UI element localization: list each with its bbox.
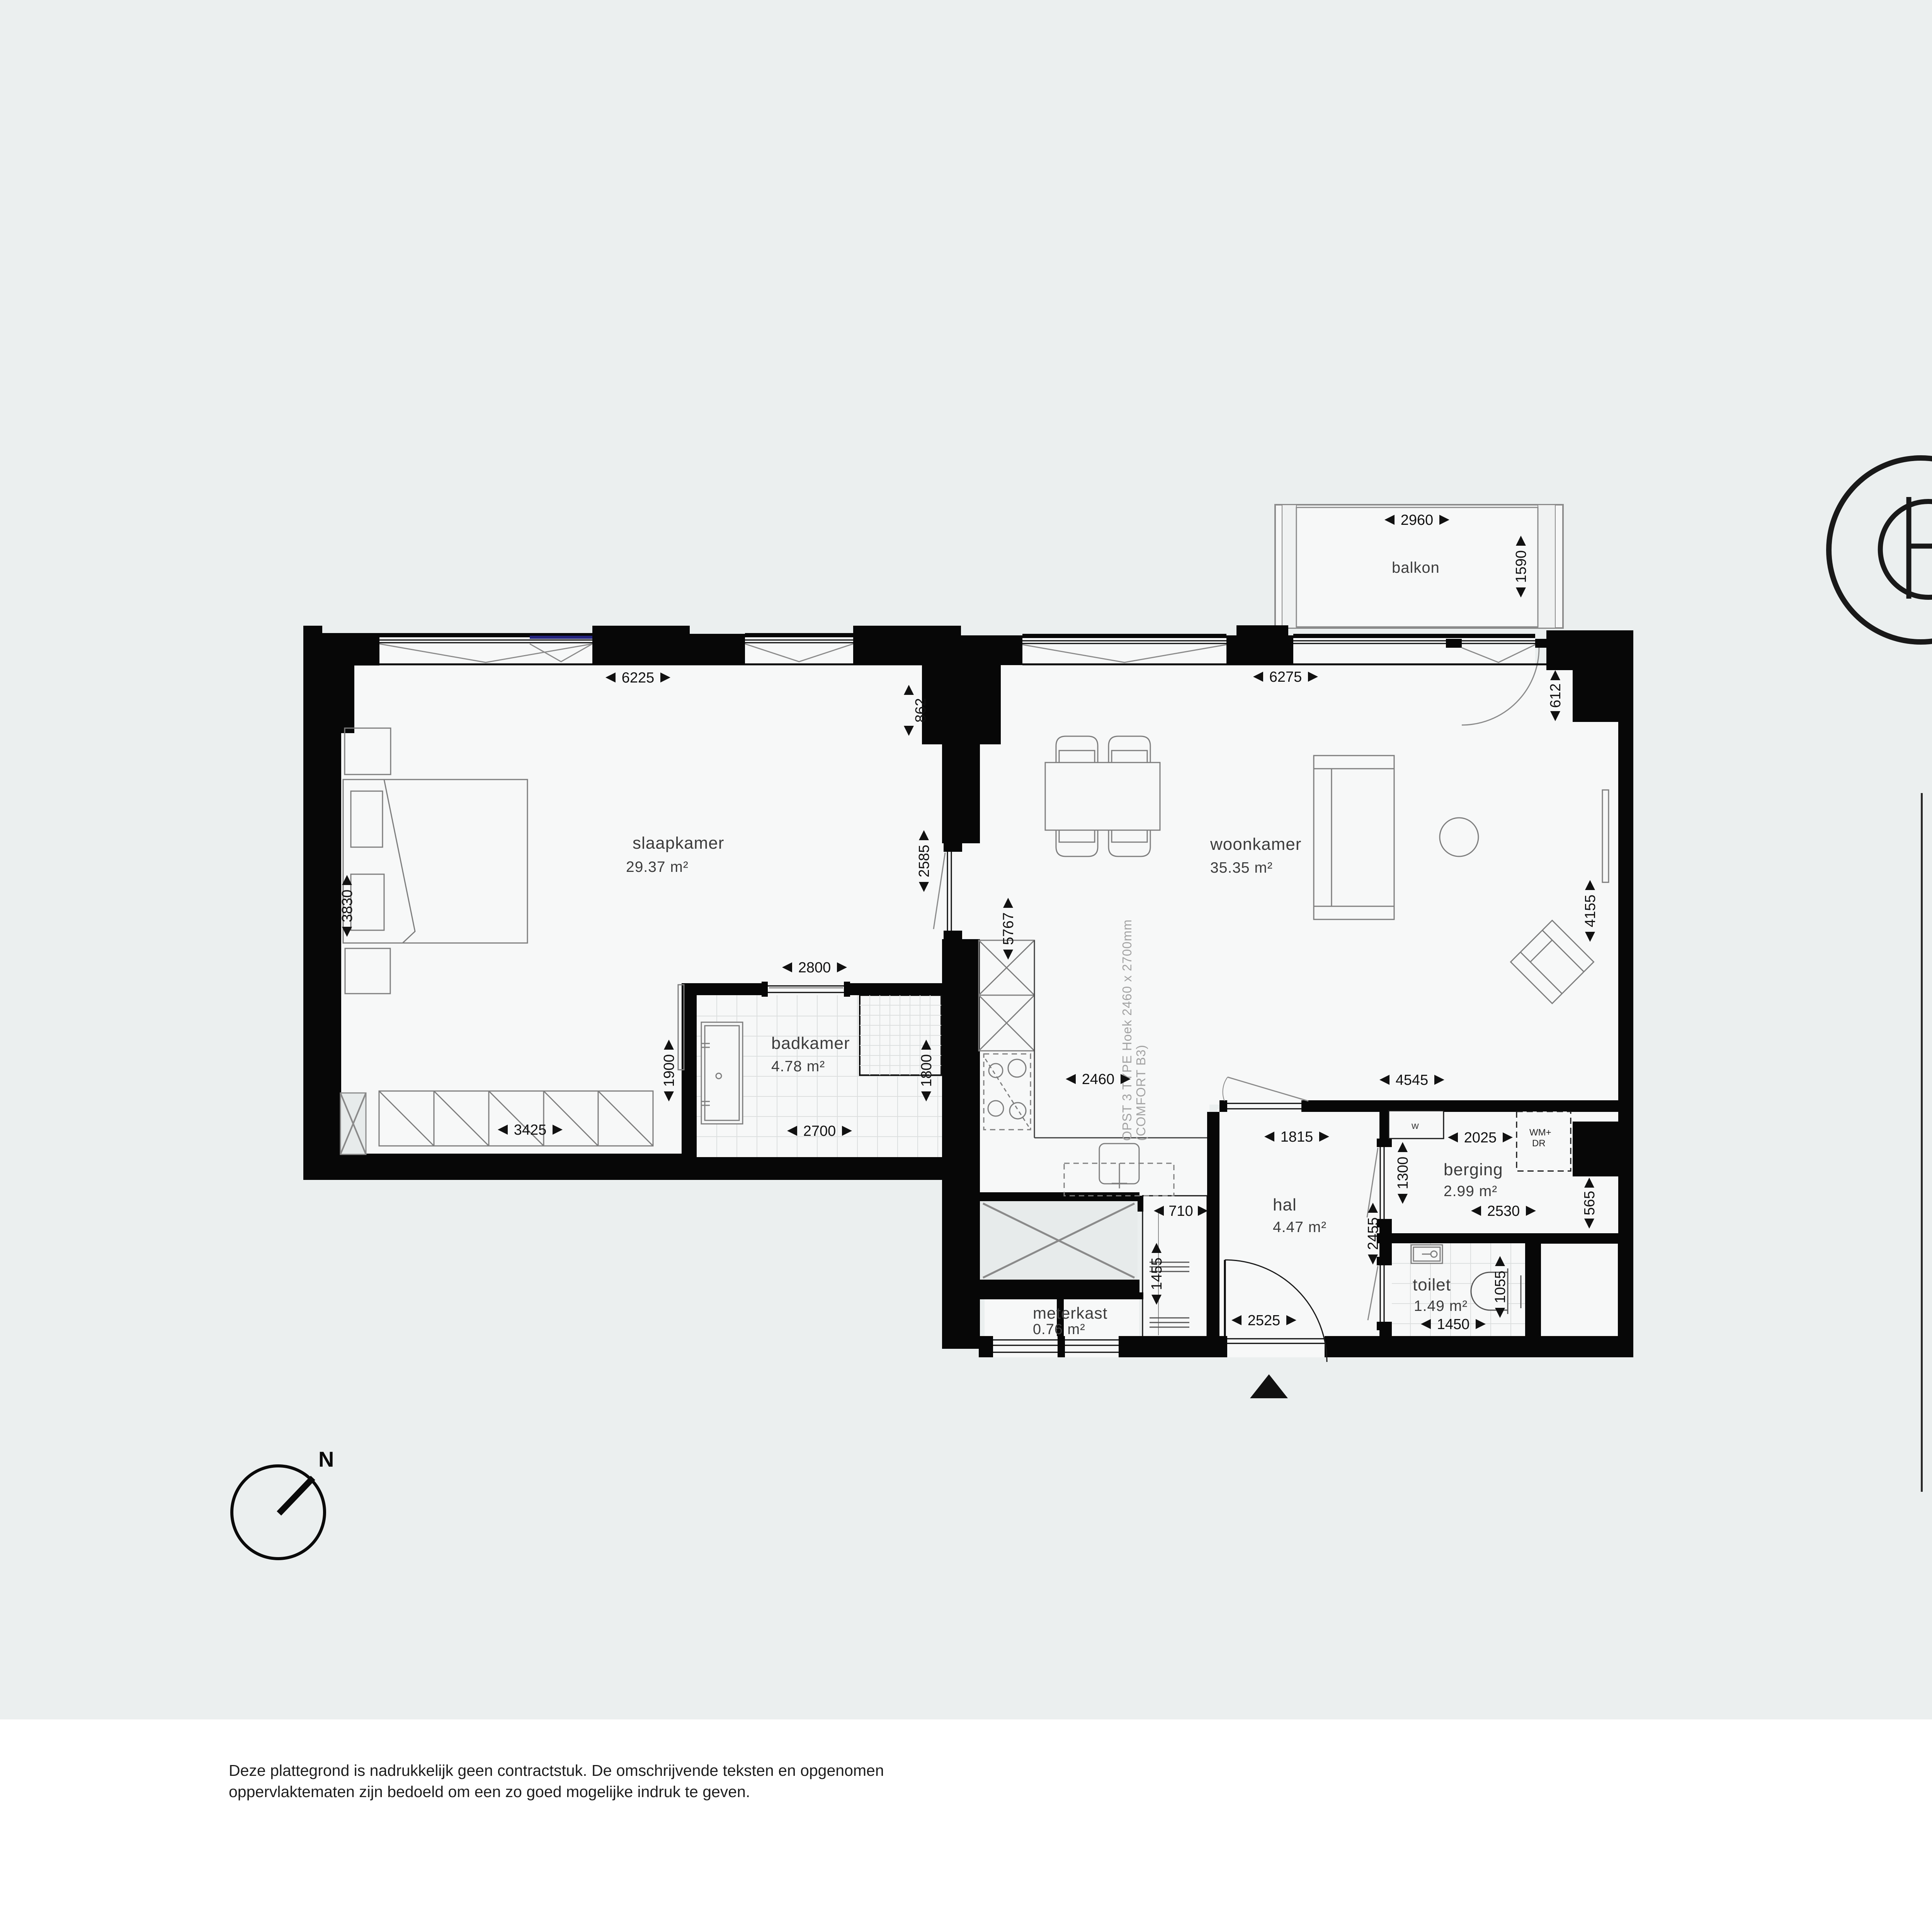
svg-text:2025: 2025 bbox=[1464, 1130, 1497, 1146]
svg-text:0.76 m²: 0.76 m² bbox=[1033, 1321, 1085, 1338]
svg-text:2530: 2530 bbox=[1487, 1203, 1520, 1219]
svg-text:2455: 2455 bbox=[1365, 1217, 1381, 1250]
svg-text:1455: 1455 bbox=[1149, 1258, 1165, 1290]
svg-text:balkon: balkon bbox=[1392, 559, 1440, 576]
svg-text:DR: DR bbox=[1532, 1138, 1546, 1149]
svg-text:4.47 m²: 4.47 m² bbox=[1273, 1219, 1327, 1236]
svg-text:2525: 2525 bbox=[1248, 1312, 1281, 1329]
svg-text:toilet: toilet bbox=[1413, 1275, 1451, 1294]
svg-text:(COMFORT B3): (COMFORT B3) bbox=[1134, 1045, 1148, 1141]
svg-text:1300: 1300 bbox=[1395, 1157, 1411, 1190]
svg-text:1.49 m²: 1.49 m² bbox=[1414, 1298, 1468, 1314]
svg-text:29.37 m²: 29.37 m² bbox=[626, 859, 689, 875]
svg-text:slaapkamer: slaapkamer bbox=[633, 834, 724, 853]
svg-text:2700: 2700 bbox=[803, 1123, 836, 1139]
svg-text:612: 612 bbox=[1548, 683, 1564, 708]
svg-text:35.35 m²: 35.35 m² bbox=[1210, 860, 1273, 876]
svg-text:OPST 3 TYPE Hoek 2460 x 2700mm: OPST 3 TYPE Hoek 2460 x 2700mm bbox=[1120, 919, 1134, 1141]
svg-text:oppervlaktematen zijn bedoeld: oppervlaktematen zijn bedoeld om een zo … bbox=[229, 1783, 750, 1801]
svg-text:4.78 m²: 4.78 m² bbox=[771, 1058, 825, 1075]
svg-text:badkamer: badkamer bbox=[771, 1034, 850, 1053]
svg-text:2960: 2960 bbox=[1401, 512, 1434, 528]
svg-text:berging: berging bbox=[1444, 1160, 1503, 1179]
svg-text:1900: 1900 bbox=[661, 1054, 677, 1087]
svg-text:4545: 4545 bbox=[1396, 1072, 1429, 1088]
svg-text:4155: 4155 bbox=[1582, 895, 1599, 928]
svg-text:1800: 1800 bbox=[918, 1054, 935, 1087]
svg-text:2585: 2585 bbox=[916, 845, 932, 878]
svg-text:2.99 m²: 2.99 m² bbox=[1444, 1183, 1497, 1200]
svg-text:w: w bbox=[1411, 1120, 1419, 1131]
svg-text:1590: 1590 bbox=[1513, 550, 1529, 583]
svg-text:2800: 2800 bbox=[798, 960, 831, 976]
svg-text:3830: 3830 bbox=[339, 890, 355, 923]
svg-text:3425: 3425 bbox=[514, 1122, 547, 1138]
svg-text:1450: 1450 bbox=[1437, 1316, 1470, 1333]
svg-text:862: 862 bbox=[913, 698, 929, 722]
svg-text:Deze plattegrond is nadrukkeli: Deze plattegrond is nadrukkelijk geen co… bbox=[229, 1762, 884, 1779]
svg-text:565: 565 bbox=[1582, 1191, 1598, 1215]
svg-text:1815: 1815 bbox=[1281, 1129, 1313, 1145]
svg-text:5767: 5767 bbox=[1000, 912, 1017, 945]
svg-text:6275: 6275 bbox=[1269, 669, 1302, 685]
svg-text:meterkast: meterkast bbox=[1033, 1304, 1107, 1322]
svg-text:WM+: WM+ bbox=[1529, 1127, 1551, 1138]
svg-text:2460: 2460 bbox=[1082, 1071, 1115, 1088]
svg-text:woonkamer: woonkamer bbox=[1210, 835, 1301, 854]
svg-text:6225: 6225 bbox=[622, 670, 655, 686]
svg-text:1055: 1055 bbox=[1492, 1271, 1509, 1304]
svg-text:N: N bbox=[318, 1447, 334, 1471]
svg-text:710: 710 bbox=[1168, 1203, 1193, 1219]
svg-text:hal: hal bbox=[1273, 1195, 1297, 1214]
